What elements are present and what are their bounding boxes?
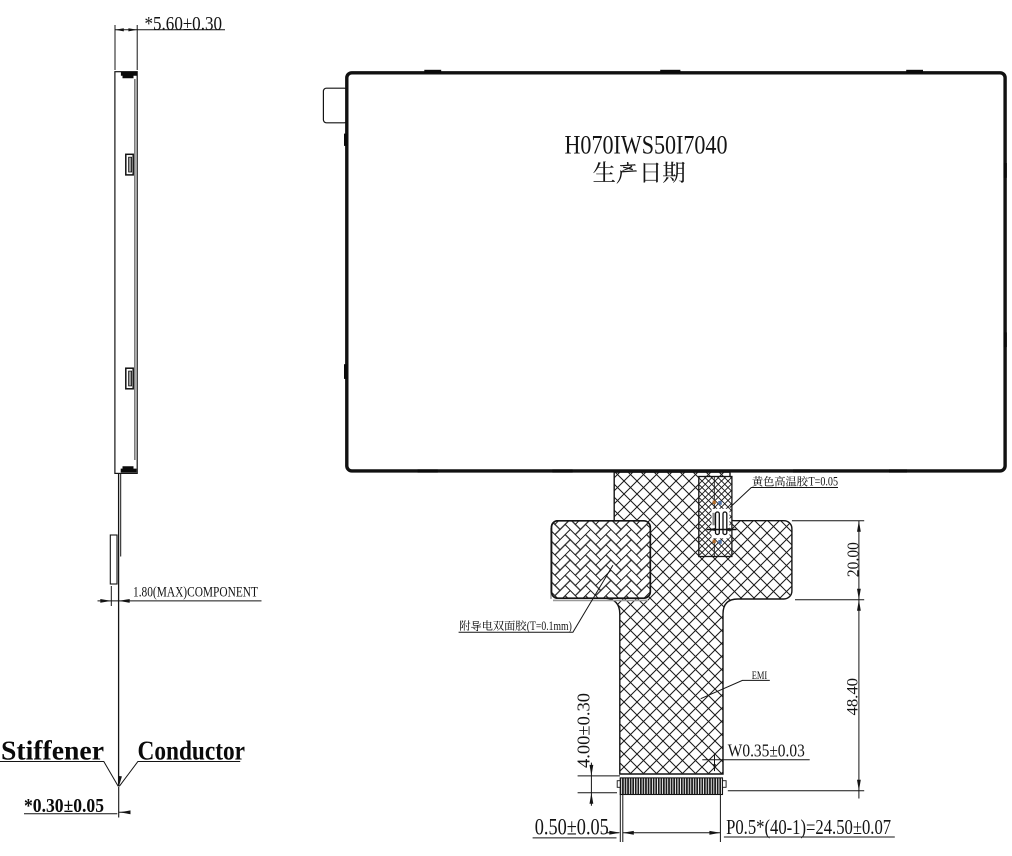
svg-text:0.50±0.05: 0.50±0.05 (535, 815, 609, 841)
svg-text:H070IWS50I7040: H070IWS50I7040 (565, 130, 728, 160)
svg-text:P0.5*(40-1)=24.50±0.07: P0.5*(40-1)=24.50±0.07 (726, 815, 891, 839)
svg-text:20.00: 20.00 (843, 542, 862, 577)
svg-text:W0.35±0.03: W0.35±0.03 (728, 741, 805, 761)
svg-text:*5.60±0.30: *5.60±0.30 (145, 14, 223, 35)
svg-text:T=0.05: T=0.05 (809, 475, 839, 489)
svg-text:4.00±0.30: 4.00±0.30 (573, 693, 593, 768)
svg-text:1.80(MAX)COMPONENT: 1.80(MAX)COMPONENT (133, 585, 258, 601)
svg-text:48.40: 48.40 (845, 678, 862, 716)
svg-text:(T=0.1mm): (T=0.1mm) (527, 619, 572, 633)
